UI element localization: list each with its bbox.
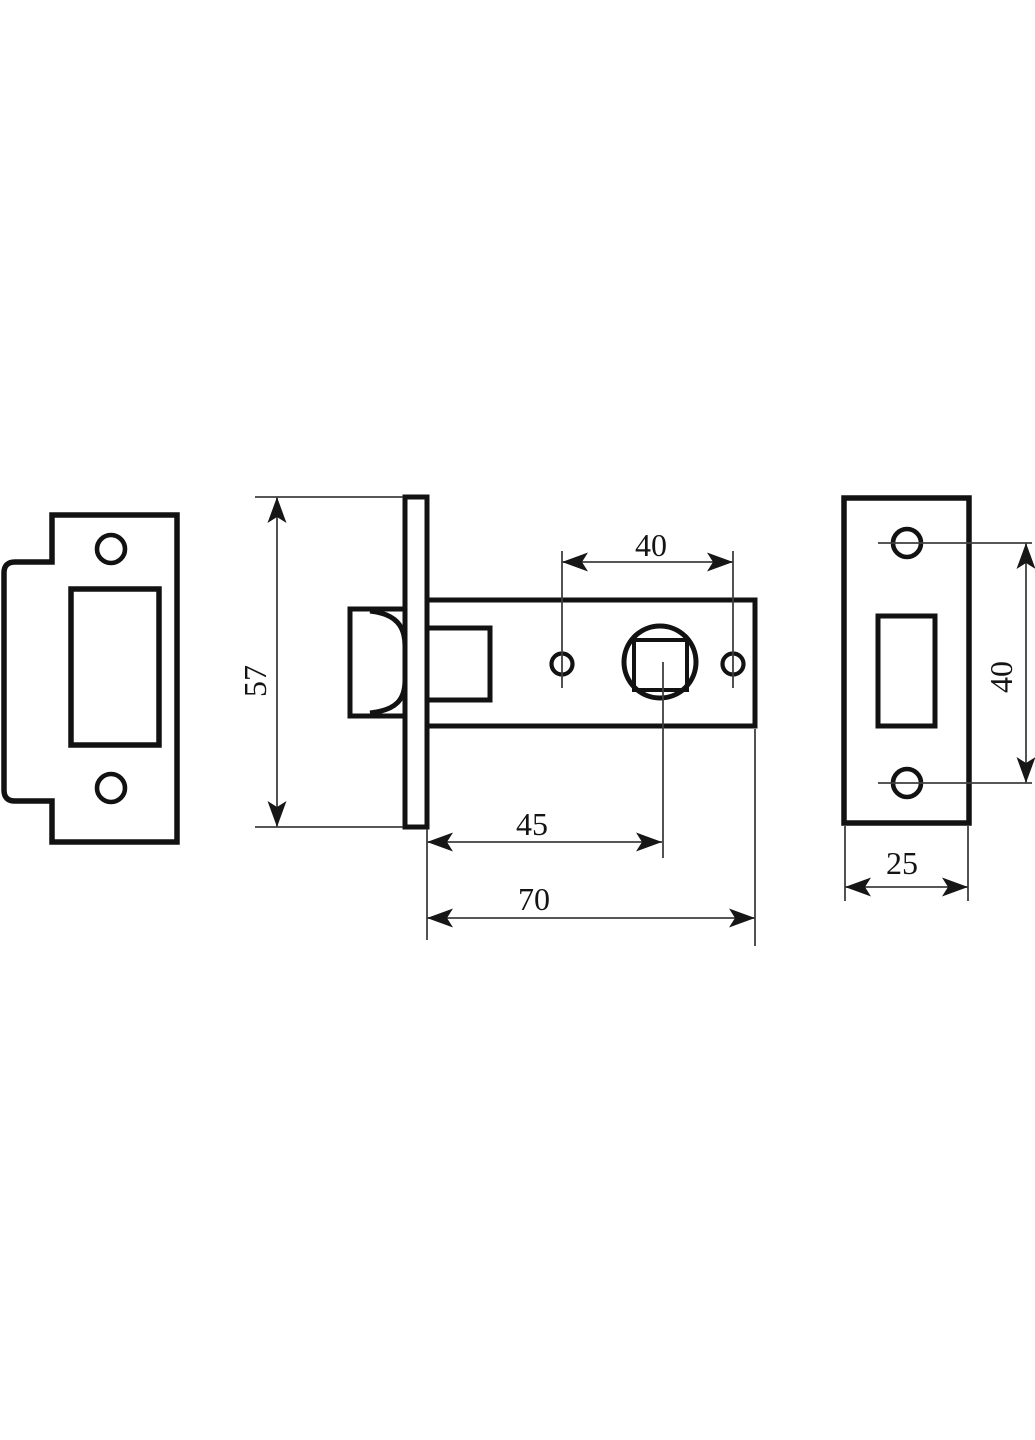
- dim-faceplate-height-label: 57: [237, 665, 273, 697]
- strike-plate-outline: [4, 515, 177, 842]
- latch-body: [426, 600, 755, 726]
- dim-body-length-label: 70: [518, 881, 550, 917]
- latch-faceplate-edge: [405, 497, 427, 827]
- faceplate-outline: [844, 498, 969, 823]
- latch-technical-drawing: 574045704025: [0, 0, 1035, 1440]
- drawing-canvas: 574045704025: [0, 0, 1035, 1440]
- dim-faceplate-hole-spacing-label: 40: [983, 661, 1019, 693]
- dim-faceplate-width-label: 25: [886, 845, 918, 881]
- dim-hole-spacing-label: 40: [635, 527, 667, 563]
- dim-backset-label: 45: [516, 806, 548, 842]
